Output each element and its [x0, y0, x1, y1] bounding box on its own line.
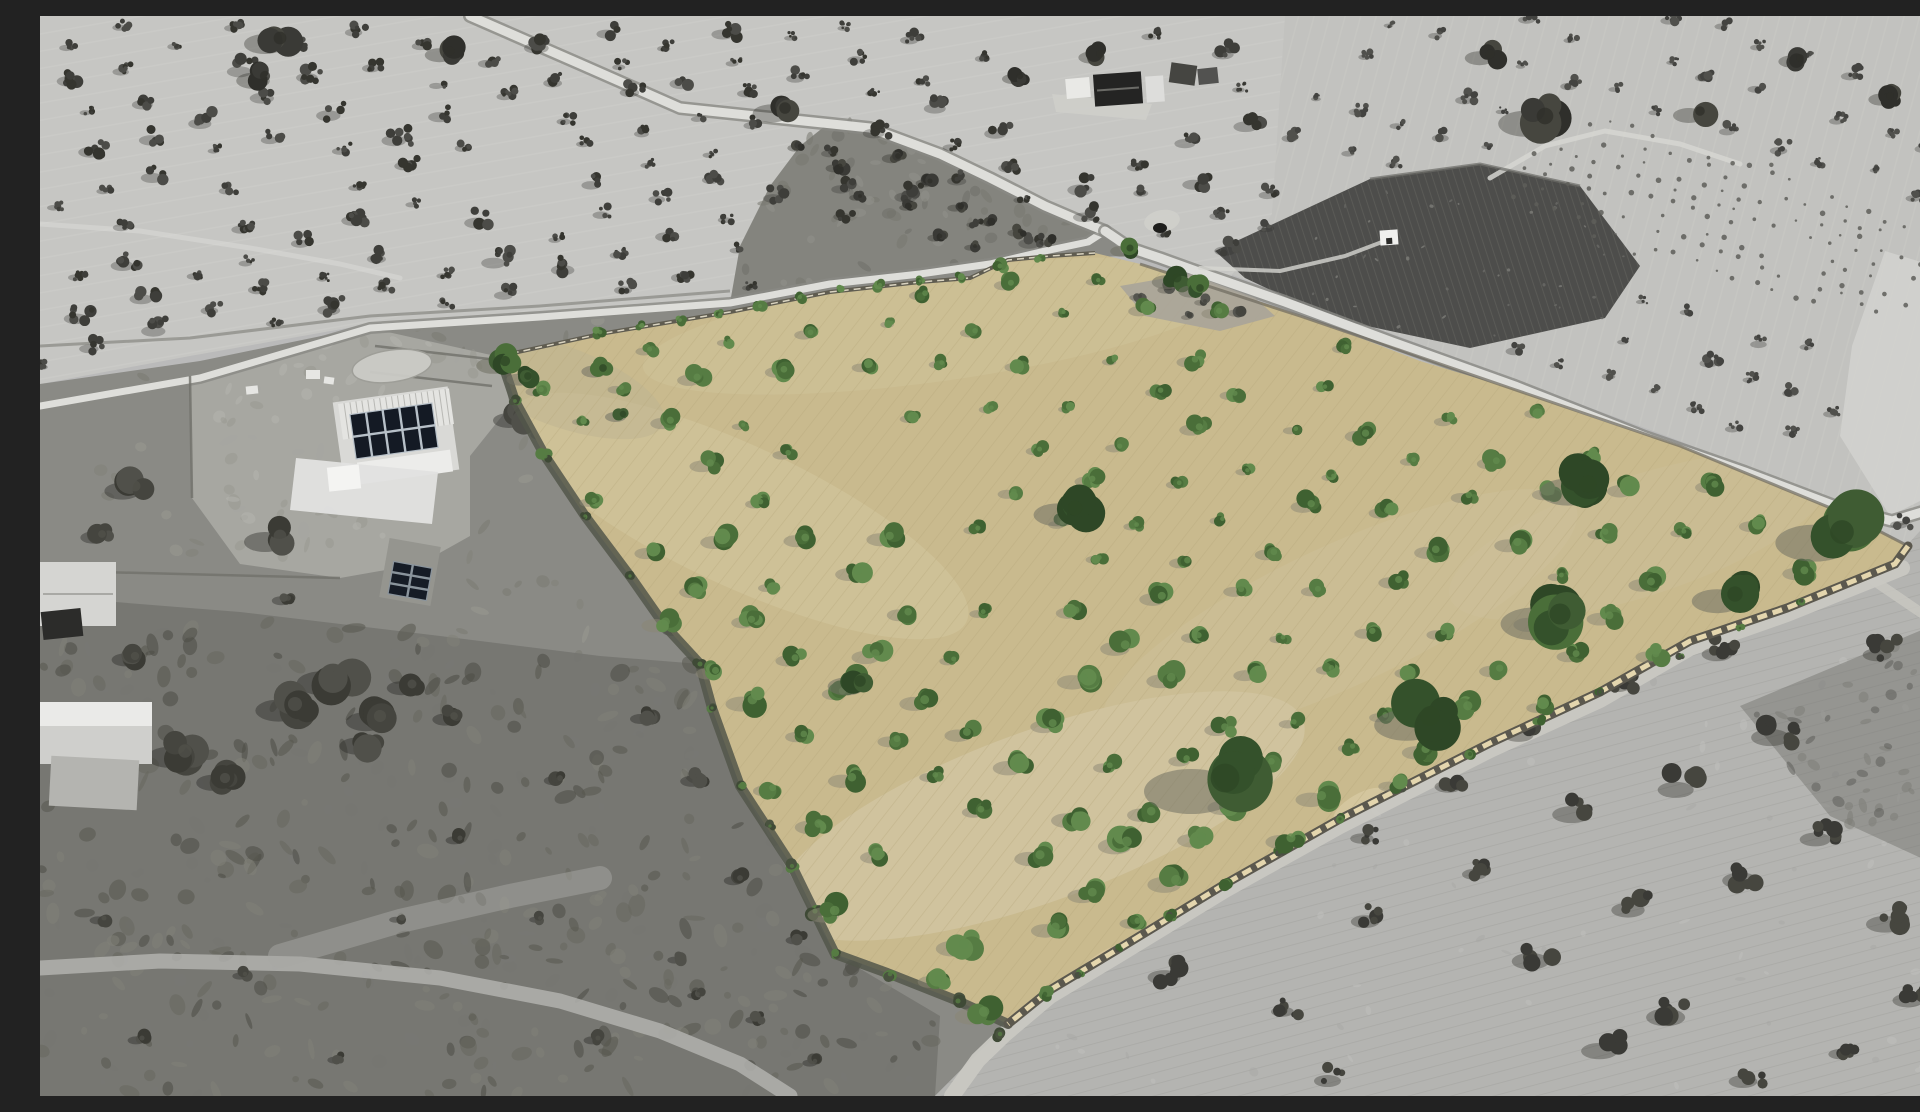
house-b-courtyard [49, 756, 139, 811]
shed-b [1197, 67, 1219, 85]
aerial-photo-canvas [40, 16, 1920, 1096]
stone-ruin [1379, 229, 1398, 245]
terrace-bright-spot [327, 464, 361, 491]
white-box-c [246, 385, 259, 394]
panel-shed-solar [387, 561, 432, 601]
barn-dark-roof [1093, 71, 1143, 106]
cave-entrance [1153, 223, 1167, 233]
house-a-dark-annex [41, 608, 84, 640]
aerial-photo [40, 16, 1920, 1096]
white-trailer [1065, 77, 1091, 99]
house-b-roof-terrace [40, 702, 152, 726]
white-box-b [324, 376, 335, 384]
white-box-a [306, 370, 320, 379]
shed-a [1169, 62, 1198, 85]
white-cube-building [1145, 75, 1165, 102]
